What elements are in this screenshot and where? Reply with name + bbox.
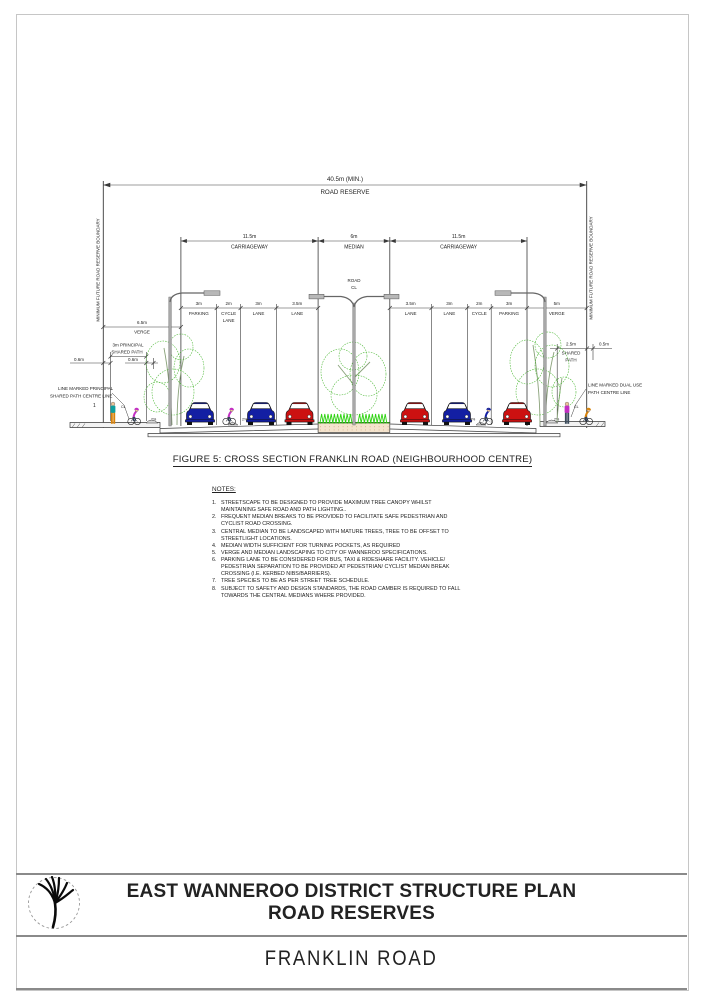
lane-label: LANE (444, 311, 456, 316)
kangaroo-paw-flower (39, 877, 73, 927)
lane-label: LANE (253, 311, 265, 316)
note-number: 4. (212, 543, 221, 550)
callout-right-line1: LINE MARKED DUAL USE (588, 383, 642, 388)
lane-dim: 3m (506, 301, 513, 306)
road-cl-line2: CL (351, 285, 357, 290)
car-lane-right-1 (400, 403, 429, 426)
dim-road-reserve-label: ROAD RESERVE (320, 189, 369, 196)
dim-right-path-offset: 0.5m (599, 342, 609, 347)
note-number: 7. (212, 578, 221, 585)
cyclist-lane-right (480, 408, 493, 424)
road-cl-line1: ROAD (347, 278, 361, 283)
dim-left-path-offset-left: 0.6m (74, 357, 84, 362)
sheet-subtitle-text: FRANKLIN ROAD (265, 947, 438, 971)
dim-right-path-value: 2.5m (566, 342, 576, 347)
pedestrian-left (111, 402, 116, 424)
callout-left-line1: LINE MARKED PRINCIPAL (58, 386, 114, 391)
boundary-label-left: MINIMUM FUTURE ROAD RESERVE BOUNDARY (96, 218, 101, 321)
dim-left-path-offset-right: 0.6m (128, 357, 138, 362)
kangaroo-paw-logo (24, 876, 114, 932)
car-lane-left-2 (285, 403, 314, 426)
pedestrian-right (565, 402, 570, 424)
note-number: 1. (212, 500, 221, 514)
lane-label: LANE (223, 318, 235, 323)
note-text: CENTRAL MEDIAN TO BE LANDSCAPED WITH MAT… (221, 529, 462, 543)
lane-label: LANE (405, 311, 417, 316)
note-item: 2. FREQUENT MEDIAN BREAKS TO BE PROVIDED… (212, 514, 462, 528)
drawing-sheet: 40.5m (MIN.) ROAD RESERVE MINIMUM FUTURE… (0, 0, 705, 1006)
note-item: 6. PARKING LANE TO BE CONSIDERED FOR BUS… (212, 557, 462, 578)
note-number: 8. (212, 586, 221, 600)
note-text: MEDIAN WIDTH SUFFICIENT FOR TURNING POCK… (221, 543, 462, 550)
lane-dim: 3m (196, 301, 203, 306)
note-item: 8. SUBJECT TO SAFETY AND DESIGN STANDARD… (212, 586, 462, 600)
lane-dim: 5m (554, 301, 561, 306)
lane-label: CYCLE (472, 311, 487, 316)
note-item: 3. CENTRAL MEDIAN TO BE LANDSCAPED WITH … (212, 529, 462, 543)
note-item: 5. VERGE AND MEDIAN LANDSCAPING TO CITY … (212, 550, 462, 557)
dim-carriageway-left-value: 11.5m (243, 234, 257, 240)
title-line-2: ROAD RESERVES (16, 903, 687, 925)
note-number: 5. (212, 550, 221, 557)
note-number: 6. (212, 557, 221, 578)
note-text: VERGE AND MEDIAN LANDSCAPING TO CITY OF … (221, 550, 462, 557)
lane-dim: 2m (225, 301, 232, 306)
notes-section: NOTES: 1. STREETSCAPE TO BE DESIGNED TO … (212, 486, 462, 600)
lane-label: LANE (291, 311, 303, 316)
dim-left-path-line1: 3m PRINCIPAL (113, 343, 144, 348)
dim-left-verge-value: 6.5m (137, 320, 147, 325)
dim-carriageway-right-label: CARRIAGEWAY (440, 245, 478, 251)
title-line-1: EAST WANNEROO DISTRICT STRUCTURE PLAN (16, 881, 687, 903)
dim-carriageway-left-label: CARRIAGEWAY (231, 245, 269, 251)
lane-dim: 2m (476, 301, 483, 306)
dim-left-path-line2: SHARED PATH (111, 350, 142, 355)
notes-heading: NOTES: (212, 486, 462, 493)
sheet-subtitle: FRANKLIN ROAD (16, 935, 687, 989)
dim-median-value: 6m (351, 234, 358, 240)
lane-dim: 3.5m (406, 301, 416, 306)
cyclist-lane-left (223, 408, 236, 424)
dim-carriageway-right-value: 11.5m (452, 234, 466, 240)
dim-road-reserve-value: 40.5m (MIN.) (327, 176, 363, 183)
street-light-centre (309, 294, 399, 425)
note-item: 7. TREE SPECIES TO BE AS PER STREET TREE… (212, 578, 462, 585)
dim-left-verge-label: VERGE (134, 330, 150, 335)
figure-caption-text: FIGURE 5: CROSS SECTION FRANKLIN ROAD (N… (173, 454, 533, 467)
marker-one: 1 (93, 403, 96, 409)
lane-label: PARKING (499, 311, 519, 316)
title-block-title: EAST WANNEROO DISTRICT STRUCTURE PLAN RO… (16, 881, 687, 925)
note-number: 3. (212, 529, 221, 543)
dim-right-path-line2: SHARED (562, 351, 582, 356)
note-item: 4. MEDIAN WIDTH SUFFICIENT FOR TURNING P… (212, 543, 462, 550)
note-text: TREE SPECIES TO BE AS PER STREET TREE SC… (221, 578, 462, 585)
note-text: STREETSCAPE TO BE DESIGNED TO PROVIDE MA… (221, 500, 462, 514)
lane-label: CYCLE (221, 311, 236, 316)
note-item: 1. STREETSCAPE TO BE DESIGNED TO PROVIDE… (212, 500, 462, 514)
note-number: 2. (212, 514, 221, 528)
title-block: EAST WANNEROO DISTRICT STRUCTURE PLAN RO… (16, 873, 687, 937)
right-path-cl: CL (574, 405, 579, 409)
callout-left-line2: SHARED PATH CENTRE LINE (50, 394, 112, 399)
left-path-cl: CL (121, 405, 126, 409)
callout-right-line2: PATH CENTRE LINE (588, 390, 630, 395)
road-base (148, 434, 560, 437)
dim-right-path-line3: PATH (565, 358, 576, 363)
figure-caption: FIGURE 5: CROSS SECTION FRANKLIN ROAD (N… (0, 449, 705, 467)
dim-median-label: MEDIAN (344, 245, 364, 251)
dimension-layer (70, 181, 612, 428)
lane-dim: 3m (446, 301, 453, 306)
lane-dim: 3m (255, 301, 262, 306)
bottom-border (16, 988, 687, 990)
lane-dim: 3.5m (292, 301, 302, 306)
lane-label: VERGE (549, 311, 565, 316)
note-text: PARKING LANE TO BE CONSIDERED FOR BUS, T… (221, 557, 462, 578)
car-lane-left-1 (246, 403, 275, 426)
note-text: SUBJECT TO SAFETY AND DESIGN STANDARDS, … (221, 586, 462, 600)
note-text: FREQUENT MEDIAN BREAKS TO BE PROVIDED TO… (221, 514, 462, 528)
lane-label: PARKING (189, 311, 209, 316)
boundary-label-right: MINIMUM FUTURE ROAD RESERVE BOUNDARY (589, 216, 594, 319)
vehicles (128, 403, 593, 426)
